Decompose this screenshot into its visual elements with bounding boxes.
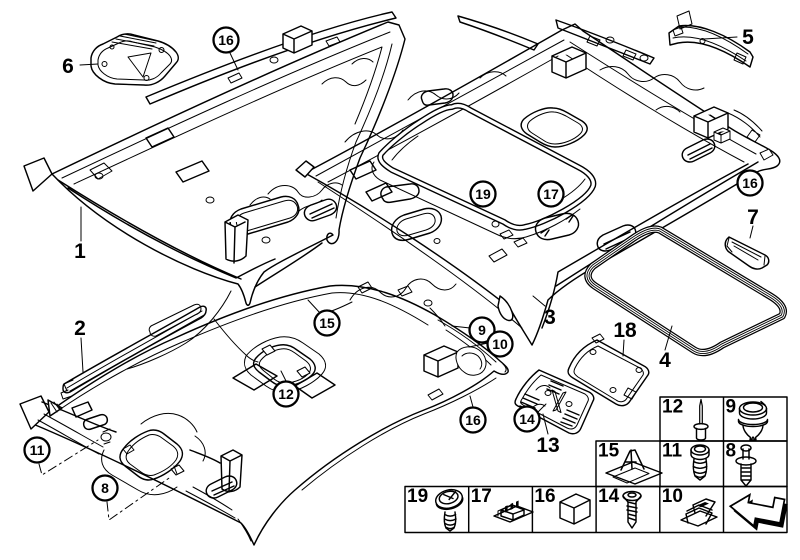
- svg-text:17: 17: [471, 486, 492, 507]
- svg-text:11: 11: [30, 442, 45, 458]
- svg-text:19: 19: [407, 486, 428, 507]
- svg-text:16: 16: [218, 32, 234, 48]
- svg-text:19: 19: [475, 186, 491, 202]
- svg-text:15: 15: [319, 315, 335, 331]
- svg-text:10: 10: [492, 336, 508, 352]
- svg-text:18: 18: [613, 319, 637, 342]
- svg-text:16: 16: [742, 175, 758, 191]
- svg-text:16: 16: [534, 486, 555, 507]
- svg-text:14: 14: [519, 411, 535, 427]
- svg-text:4: 4: [659, 349, 671, 372]
- svg-text:17: 17: [543, 186, 559, 202]
- svg-text:12: 12: [278, 386, 294, 402]
- svg-text:15: 15: [598, 441, 620, 462]
- svg-text:6: 6: [62, 55, 74, 78]
- svg-text:8: 8: [101, 480, 109, 496]
- svg-text:14: 14: [598, 486, 620, 507]
- svg-text:2: 2: [74, 317, 86, 340]
- svg-text:7: 7: [747, 206, 759, 229]
- svg-text:11: 11: [662, 441, 683, 462]
- svg-text:9: 9: [478, 322, 486, 338]
- svg-text:8: 8: [726, 441, 737, 462]
- svg-text:3: 3: [544, 306, 556, 329]
- svg-text:5: 5: [742, 26, 754, 49]
- svg-text:13: 13: [536, 434, 559, 457]
- svg-text:1: 1: [74, 240, 86, 263]
- svg-text:16: 16: [465, 412, 481, 428]
- svg-text:10: 10: [662, 486, 683, 507]
- svg-text:9: 9: [726, 397, 737, 418]
- svg-text:12: 12: [662, 397, 683, 418]
